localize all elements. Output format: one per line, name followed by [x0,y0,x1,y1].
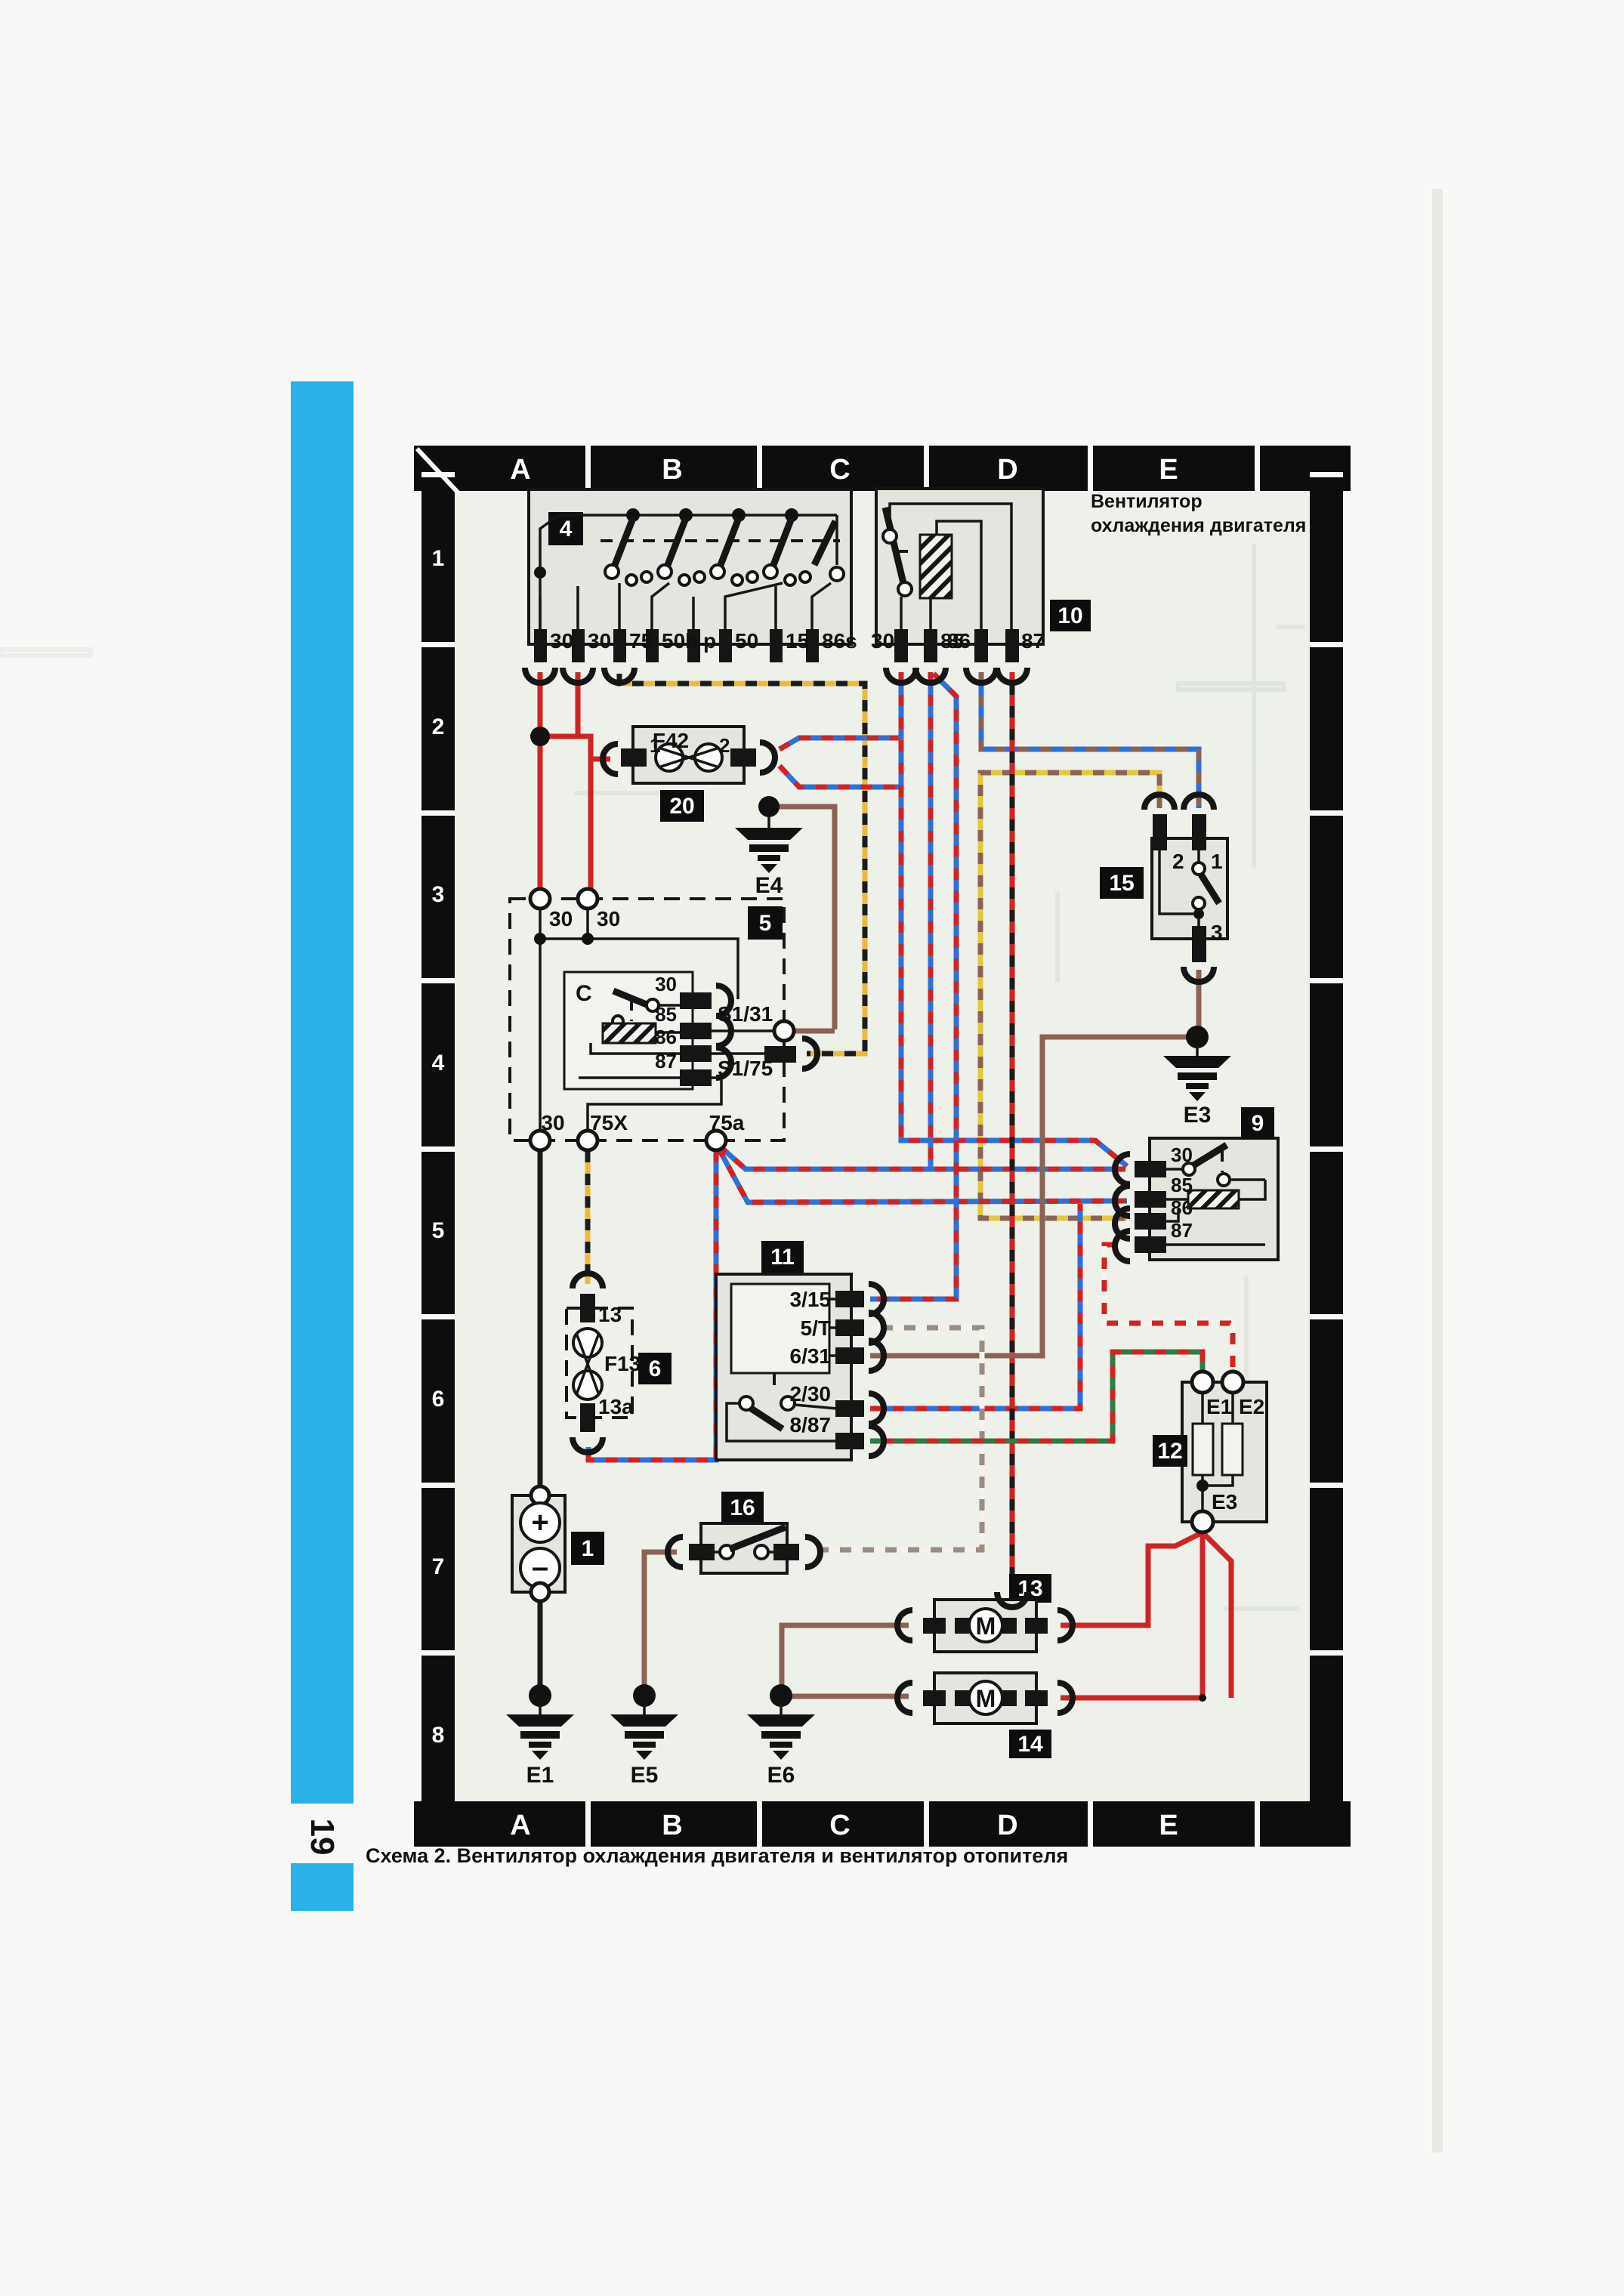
badge-14: 14 [1017,1732,1043,1757]
svg-text:E1: E1 [526,1763,554,1788]
badge-16: 16 [730,1495,755,1520]
row-label-1: 1 [432,546,445,571]
svg-text:75: 75 [629,629,653,653]
svg-text:6/31: 6/31 [790,1344,832,1368]
svg-text:85: 85 [655,1003,677,1026]
row-label-4: 4 [432,1051,445,1075]
svg-text:30: 30 [655,973,677,995]
col-label-a-top: A [510,454,530,486]
battery-minus: – [532,1551,548,1584]
svg-text:p: p [703,629,716,653]
svg-text:3/15: 3/15 [790,1288,832,1311]
svg-text:C: C [576,981,592,1006]
svg-text:75X: 75X [590,1111,628,1134]
col-label-d-top: D [997,454,1017,486]
svg-text:3: 3 [1211,921,1223,944]
svg-text:E5: E5 [631,1763,659,1788]
badge-1: 1 [582,1536,594,1561]
badge-12: 12 [1157,1439,1182,1464]
col-label-c-bottom: C [829,1810,850,1841]
svg-text:30: 30 [550,629,573,653]
svg-text:5/T: 5/T [801,1316,831,1340]
badge-10: 10 [1057,603,1082,628]
badge-15: 15 [1109,871,1134,896]
svg-text:2: 2 [1172,850,1184,873]
relay-coil [603,1023,656,1043]
svg-text:13: 13 [598,1303,622,1326]
svg-text:F13: F13 [604,1352,641,1375]
row-label-3: 3 [432,882,445,907]
row-label-2: 2 [432,714,445,739]
badge-4: 4 [560,517,573,542]
page-number: 19 [304,1819,341,1856]
component-4-ignition-switch: 4 30 30 75 50b p 50 15 86s [525,489,857,683]
svg-text:S1/31: S1/31 [718,1002,773,1026]
annotation-line1: Вентилятор [1091,491,1203,512]
svg-text:2: 2 [719,734,730,757]
col-label-d-bottom: D [997,1810,1017,1841]
svg-text:87: 87 [1021,629,1045,653]
svg-text:S1/75: S1/75 [718,1057,773,1080]
svg-text:E4: E4 [755,873,783,898]
badge-20: 20 [669,794,694,819]
col-label-e-bottom: E [1159,1810,1178,1841]
svg-text:30: 30 [541,1111,564,1134]
badge-5: 5 [759,911,772,936]
row-label-5: 5 [432,1218,445,1243]
motor-m: M [976,1685,996,1712]
col-label-e-top: E [1159,454,1178,486]
badge-9: 9 [1252,1111,1264,1136]
svg-text:E3: E3 [1184,1103,1212,1128]
badge-11: 11 [770,1245,795,1270]
col-label-b-bottom: B [662,1810,682,1841]
relay-coil [920,535,952,598]
page-edge-shadow [1432,189,1443,2152]
figure-caption: Схема 2. Вентилятор охлаждения двигателя… [366,1844,1068,1867]
svg-text:15: 15 [786,629,809,653]
annotation-line2: охлаждения двигателя [1091,515,1306,536]
svg-text:50b: 50b [662,629,698,653]
battery-plus: + [531,1506,548,1539]
svg-text:50: 50 [735,629,758,653]
svg-text:30: 30 [871,629,894,653]
terminal-stubs [680,992,712,1086]
svg-text:2/30: 2/30 [790,1382,832,1406]
svg-text:E3: E3 [1212,1490,1237,1514]
svg-text:75a: 75a [709,1111,745,1134]
svg-text:E2: E2 [1239,1395,1264,1418]
svg-text:86: 86 [655,1026,677,1048]
svg-text:86: 86 [947,629,971,653]
svg-text:1: 1 [1211,850,1223,873]
motor-m: M [976,1612,996,1640]
svg-text:86s: 86s [822,629,857,653]
badge-6: 6 [649,1356,662,1381]
scanned-manual-page: 19 A [0,0,1624,2296]
svg-text:87: 87 [655,1050,677,1072]
svg-text:E6: E6 [767,1763,795,1788]
svg-text:E1: E1 [1206,1395,1232,1418]
relay-coil [1188,1190,1239,1208]
col-label-b-top: B [662,454,682,486]
svg-text:30: 30 [549,907,573,930]
svg-text:13a: 13a [598,1395,634,1418]
row-label-6: 6 [432,1387,445,1412]
svg-text:30: 30 [597,907,620,930]
col-label-c-top: C [829,454,850,486]
svg-text:F42: F42 [653,729,689,752]
row-label-8: 8 [432,1723,445,1748]
cyan-side-stripe [291,381,354,1911]
badge-13: 13 [1017,1576,1042,1601]
col-label-a-bottom: A [510,1810,530,1841]
terminal-stubs [1135,1161,1166,1253]
svg-text:30: 30 [588,629,611,653]
row-label-7: 7 [432,1554,445,1579]
svg-text:8/87: 8/87 [790,1413,832,1437]
